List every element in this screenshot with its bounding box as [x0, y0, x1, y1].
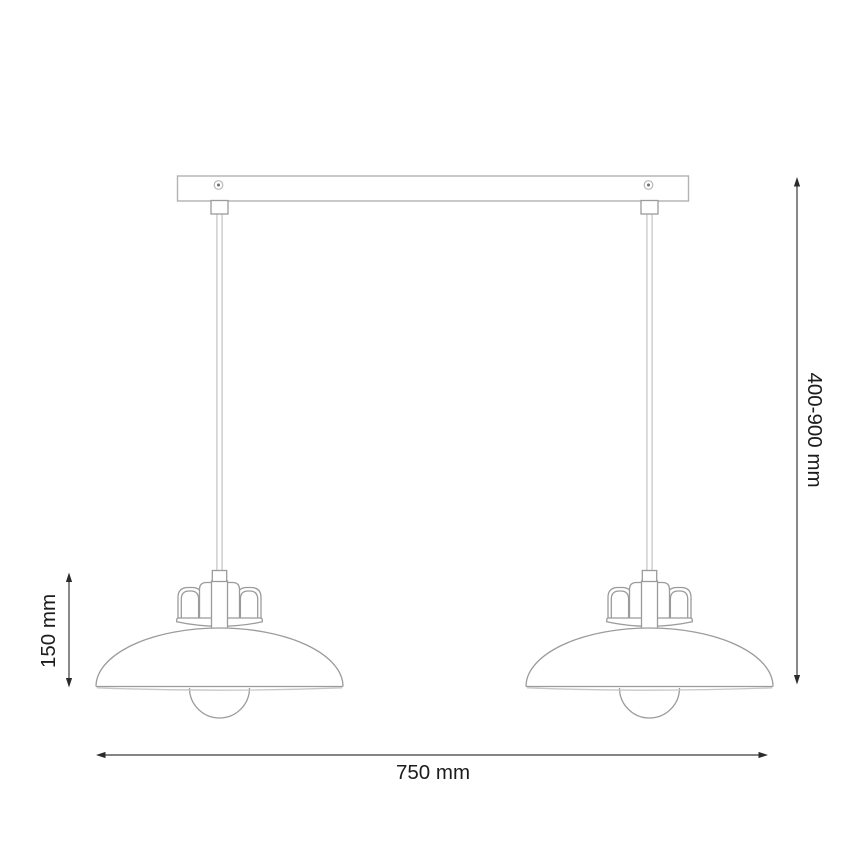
pendant-lamp-left — [96, 201, 343, 719]
dimension-suspension-range: 400-900 mm — [794, 177, 826, 685]
pendant-lamp-drawing: 400-900 mm 150 mm 750 mm — [0, 0, 868, 868]
overall-width-label: 750 mm — [396, 761, 470, 784]
mounting-screw-left-icon — [214, 181, 223, 190]
dimension-drawing-canvas: 400-900 mm 150 mm 750 mm — [0, 0, 868, 868]
arrow-up-icon — [66, 573, 72, 583]
arrow-right-icon — [759, 752, 769, 758]
arrow-left-icon — [96, 752, 106, 758]
arrow-down-icon — [66, 678, 72, 688]
ceiling-rail — [178, 176, 689, 201]
pendant-lamp-right — [526, 201, 773, 719]
arrow-down-icon — [794, 675, 800, 685]
arrow-up-icon — [794, 177, 800, 187]
suspension-range-label: 400-900 mm — [803, 372, 826, 487]
shade-height-label: 150 mm — [37, 594, 60, 668]
dimension-shade-height: 150 mm — [37, 573, 72, 688]
dimension-overall-width: 750 mm — [96, 752, 768, 784]
mounting-screw-right-icon — [644, 181, 653, 190]
